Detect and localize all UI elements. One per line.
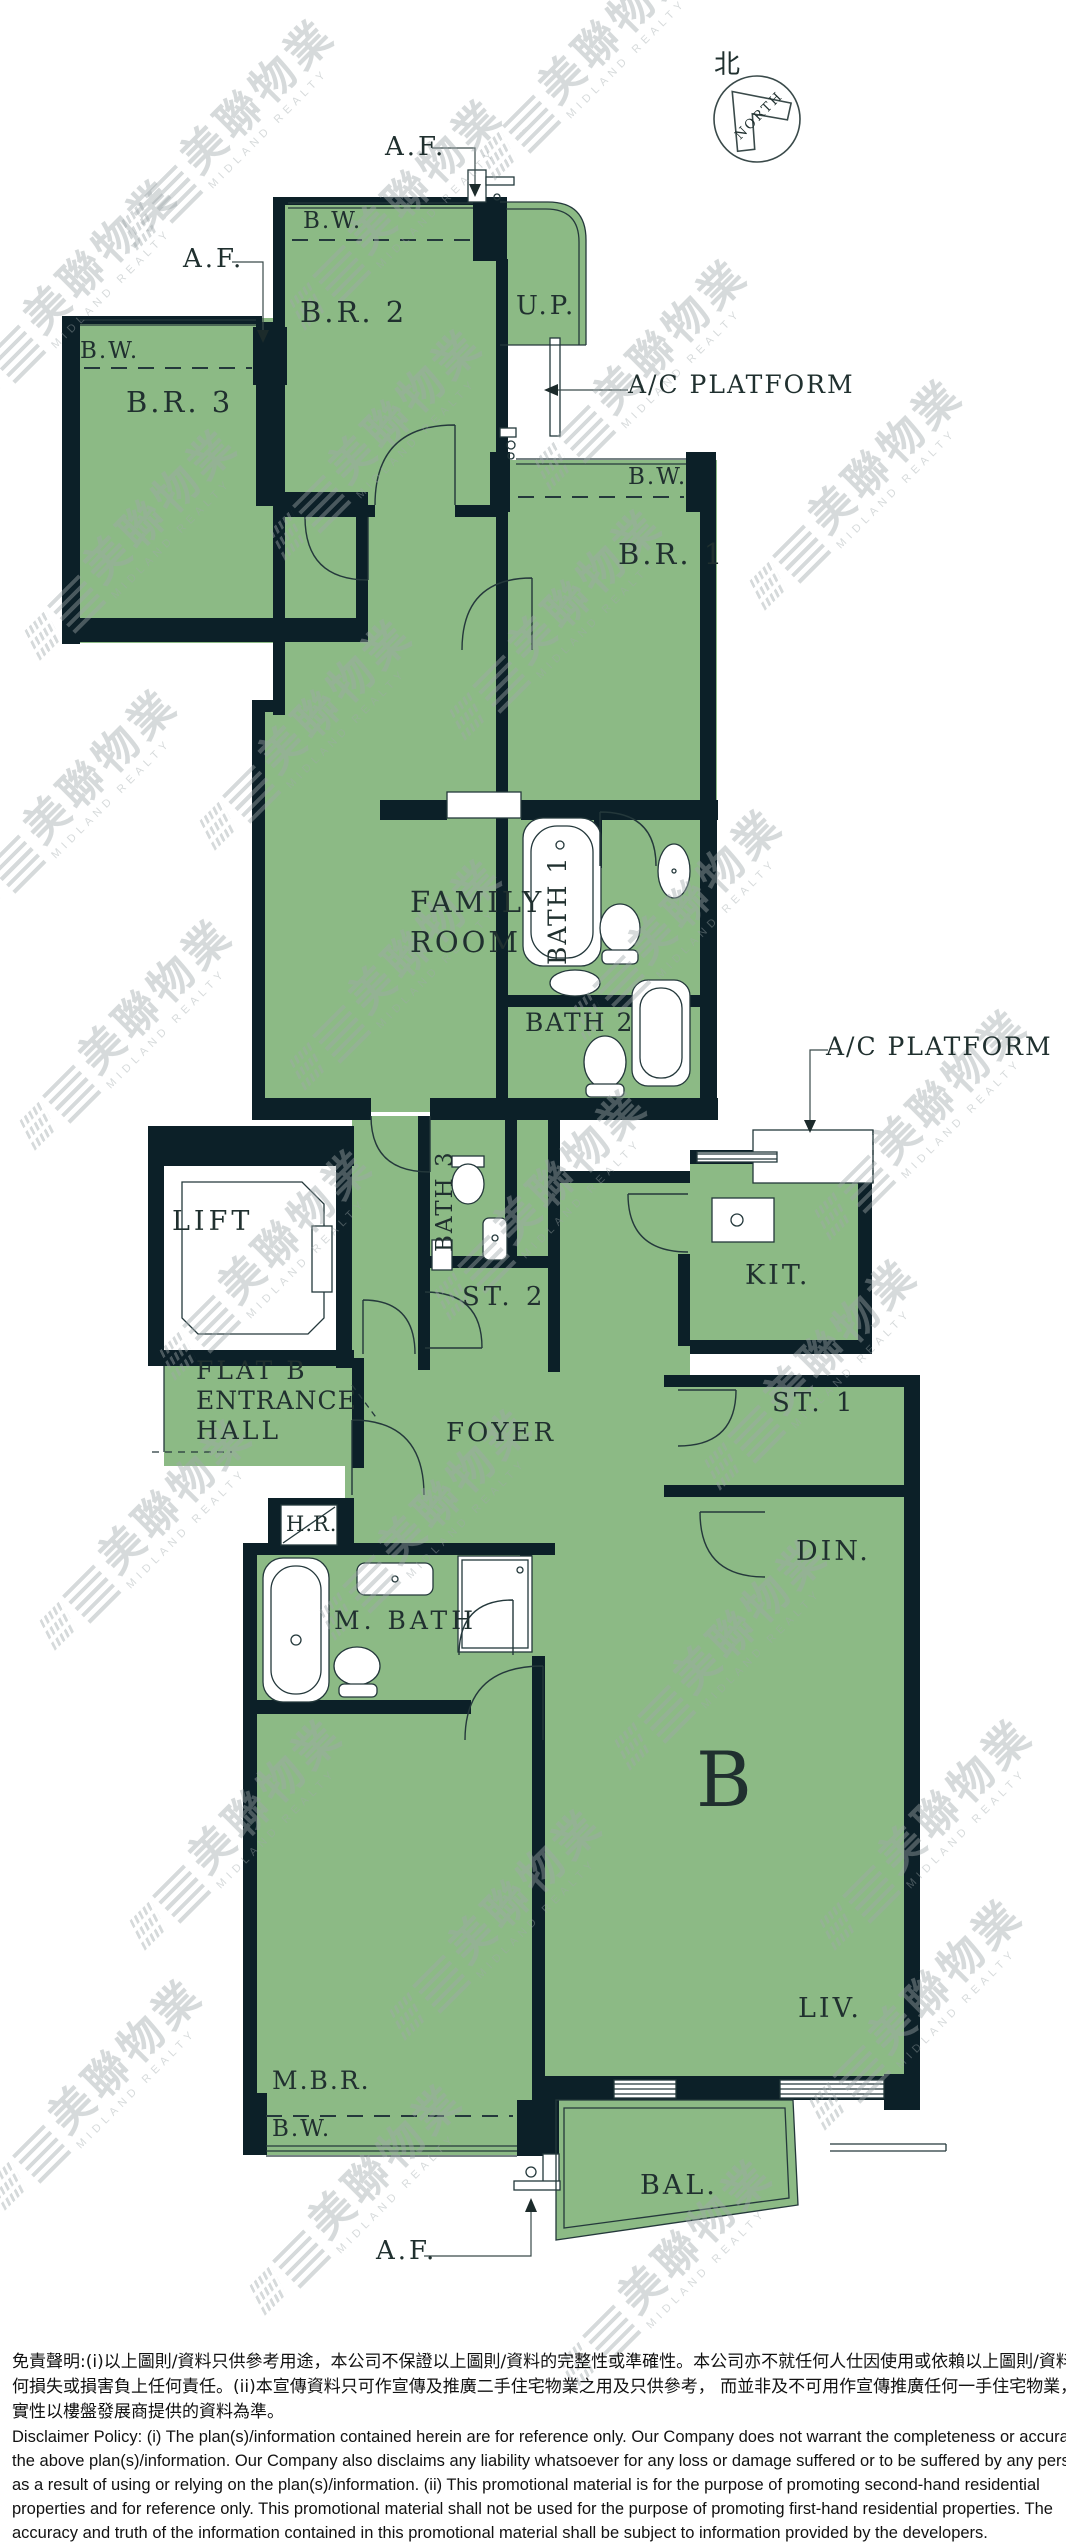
disclaimer-zh-line1: 免責聲明:(i)以上圖則/資料只供參考用途，本公司不保證以上圖則/資料的完整性或… [12,2350,1060,2375]
disclaimer-en-line5: accuracy and truth of the information co… [12,2521,1060,2545]
floor-plan-drawing [0,0,1066,2545]
disclaimer-zh-line2: 何損失或損害負上任何責任。(ii)本宣傳資料只可作宣傳及推廣二手住宅物業之用及只… [12,2375,1060,2400]
disclaimer-en-line2: the above plan(s)/information. Our Compa… [12,2449,1060,2473]
disclaimer-en-line1: Disclaimer Policy: (i) The plan(s)/infor… [12,2425,1060,2449]
disclaimer-en-line3: as a result of using or relying on the p… [12,2473,1060,2497]
floor-plan-page: 美聯物業MIDLAND REALTY美聯物業MIDLAND REALTY美聯物業… [0,0,1066,2545]
disclaimer-zh-line3: 實性以樓盤發展商提供的資料為準。 [12,2400,1060,2425]
north-arrow-icon [705,67,800,162]
disclaimer-en-line4: properties and for reference only. This … [12,2497,1060,2521]
disclaimer-block: 免責聲明:(i)以上圖則/資料只供參考用途，本公司不保證以上圖則/資料的完整性或… [12,2350,1060,2545]
